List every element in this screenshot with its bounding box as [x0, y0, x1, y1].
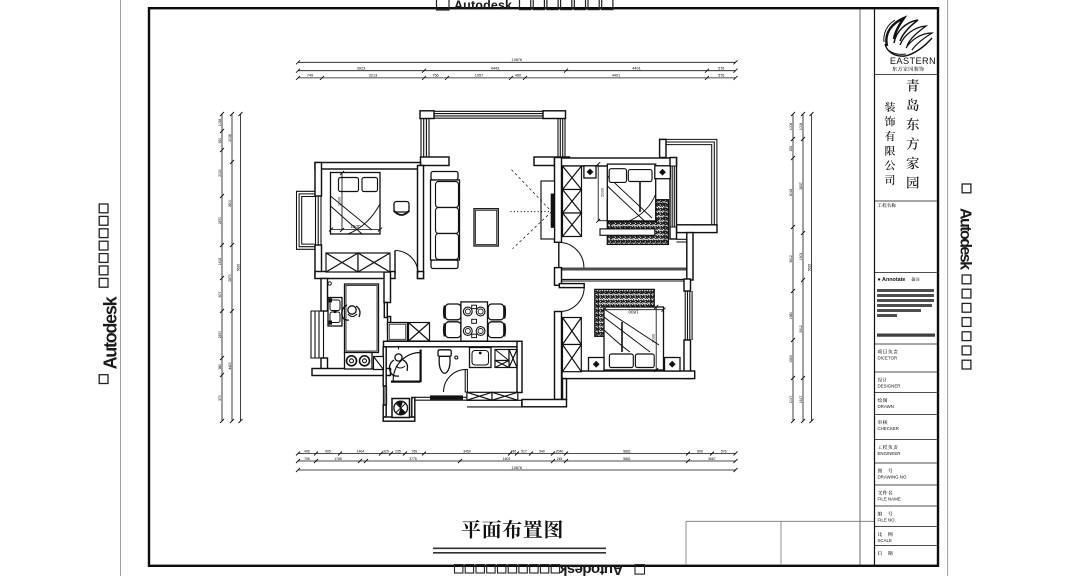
svg-text:2870: 2870 [218, 217, 222, 225]
svg-text:245: 245 [557, 457, 563, 461]
svg-text:1418: 1418 [218, 258, 222, 266]
svg-text:1038: 1038 [218, 119, 222, 127]
svg-text:3667: 3667 [708, 457, 716, 461]
svg-text:3912: 3912 [799, 325, 803, 333]
svg-text:1017: 1017 [789, 396, 793, 404]
svg-text:4420: 4420 [228, 362, 232, 370]
svg-text:2870: 2870 [218, 331, 222, 339]
svg-text:496: 496 [304, 449, 310, 453]
svg-text:4401: 4401 [612, 74, 620, 78]
svg-text:1957: 1957 [475, 74, 483, 78]
svg-text:2040: 2040 [556, 449, 564, 453]
svg-text:1768: 1768 [334, 457, 342, 461]
svg-text:3837: 3837 [799, 182, 803, 190]
svg-text:5626: 5626 [236, 264, 240, 272]
svg-text:FILE NAME: FILE NAME [878, 497, 901, 502]
svg-text:899: 899 [697, 449, 703, 453]
svg-text:3776: 3776 [409, 457, 417, 461]
svg-text:1603: 1603 [503, 457, 511, 461]
svg-text:4443: 4443 [491, 67, 499, 71]
svg-text:245: 245 [511, 449, 517, 453]
svg-text:756: 756 [432, 74, 438, 78]
svg-text:980: 980 [218, 364, 222, 370]
svg-text:920: 920 [218, 138, 222, 144]
svg-text:576: 576 [718, 74, 724, 78]
svg-text:CHECKER: CHECKER [878, 426, 899, 431]
svg-text:1464: 1464 [357, 449, 365, 453]
svg-text:SCALE: SCALE [878, 538, 892, 543]
svg-text:2038: 2038 [228, 134, 232, 142]
svg-text:DRAWN: DRAWN [878, 404, 894, 409]
svg-text:DESIGNER: DESIGNER [878, 384, 901, 389]
svg-text:2030: 2030 [600, 187, 605, 197]
svg-text:DICETOR: DICETOR [878, 356, 898, 361]
svg-text:3612: 3612 [789, 255, 793, 263]
svg-text:450: 450 [515, 74, 521, 78]
svg-text:DRAWING NO.: DRAWING NO. [878, 475, 908, 480]
svg-text:13676: 13676 [511, 58, 522, 62]
svg-text:4018: 4018 [789, 189, 793, 197]
svg-text:940: 940 [539, 449, 545, 453]
svg-text:1500: 1500 [350, 224, 361, 229]
svg-text:1980: 1980 [789, 312, 793, 320]
svg-text:5626: 5626 [807, 264, 811, 272]
svg-text:13676: 13676 [511, 466, 522, 470]
svg-text:1008: 1008 [799, 123, 803, 131]
svg-text:749: 749 [307, 74, 313, 78]
svg-text:3213: 3213 [369, 74, 377, 78]
svg-text:3600: 3600 [228, 200, 232, 208]
svg-text:2030: 2030 [337, 196, 342, 206]
svg-text:370: 370 [218, 395, 222, 401]
svg-text:1903: 1903 [799, 253, 803, 261]
svg-text:3923: 3923 [357, 67, 365, 71]
svg-text:1800: 1800 [628, 310, 639, 315]
svg-text:1617: 1617 [799, 396, 803, 404]
svg-text:● Annotate: ● Annotate [878, 277, 906, 283]
svg-text:1800: 1800 [620, 225, 631, 230]
svg-text:3450: 3450 [463, 449, 471, 453]
svg-text:252: 252 [789, 146, 793, 152]
svg-text:2030: 2030 [651, 333, 656, 343]
svg-text:576: 576 [721, 449, 727, 453]
svg-text:Autodesk: Autodesk [559, 561, 624, 576]
svg-text:5861: 5861 [623, 449, 631, 453]
svg-text:Autodesk: Autodesk [957, 208, 974, 270]
svg-text:FILE NO.: FILE NO. [878, 518, 896, 523]
svg-text:5861: 5861 [623, 457, 631, 461]
svg-text:607: 607 [218, 292, 222, 298]
svg-text:4401: 4401 [632, 67, 640, 71]
svg-text:2870: 2870 [228, 274, 232, 282]
svg-text:1008: 1008 [789, 123, 793, 131]
svg-text:769: 769 [412, 449, 418, 453]
svg-text:2030: 2030 [218, 169, 222, 177]
svg-text:576: 576 [718, 67, 724, 71]
svg-text:Autodesk: Autodesk [454, 0, 512, 12]
svg-text:706: 706 [304, 457, 310, 461]
svg-text:517: 517 [521, 449, 527, 453]
svg-text:ENGINEER: ENGINEER [878, 451, 901, 456]
svg-text:235: 235 [395, 449, 401, 453]
svg-text:329: 329 [383, 449, 389, 453]
svg-text:EASTERN: EASTERN [890, 56, 936, 66]
svg-text:905: 905 [325, 449, 331, 453]
svg-text:1563: 1563 [789, 355, 793, 363]
svg-text:Autodesk: Autodesk [100, 295, 120, 369]
